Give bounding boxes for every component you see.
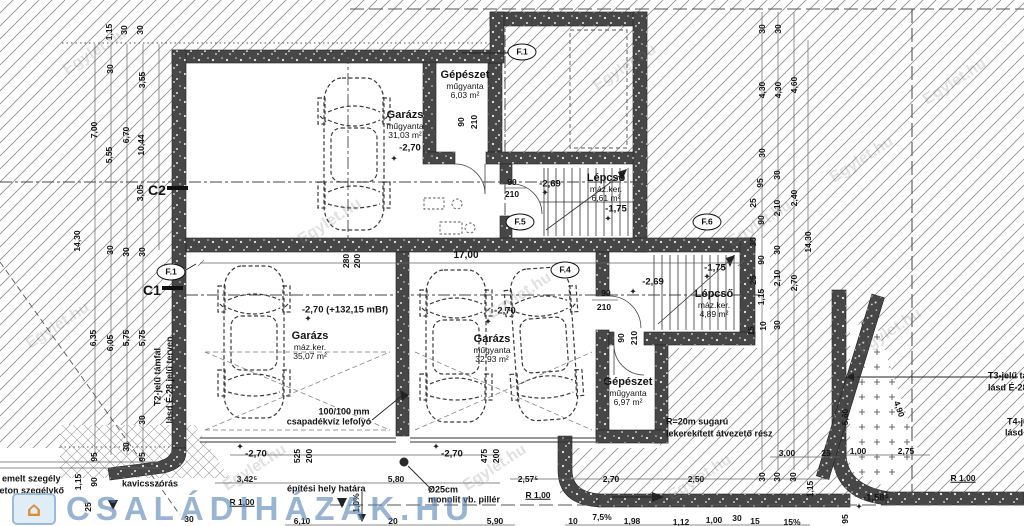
level-marker-icon: ✦ xyxy=(484,318,492,327)
level-marker-icon: ✦ xyxy=(703,273,711,282)
dimension-label: 95 xyxy=(138,452,147,461)
room-label: Garázsmáz.ker.35,07 m² xyxy=(292,331,329,362)
annotation-text: T4-jelű támfal xyxy=(1007,418,1024,427)
detail-marker: F.1 xyxy=(508,44,537,61)
dimension-label: 30 xyxy=(758,148,767,157)
level-marker-icon: ✦ xyxy=(390,155,398,164)
dimension-label: 1,00 xyxy=(706,516,723,525)
dimension-label: 3,05 xyxy=(136,185,145,202)
dimension-label: 6,70 xyxy=(122,127,131,144)
dimension-label: 90 xyxy=(617,333,626,342)
level-marker-icon: ✦ xyxy=(236,443,244,452)
dimension-label: 1,15 xyxy=(806,481,815,498)
room-label: Garázsműgyanta31,03 m² xyxy=(386,110,423,141)
site-watermark: Egylet.hu xyxy=(23,300,92,353)
level-marker-icon: ✦ xyxy=(541,189,549,198)
dimension-label: 90 xyxy=(601,289,610,298)
site-watermark: Egylet.hu xyxy=(665,452,734,505)
dimension-label: 1,12 xyxy=(673,518,690,526)
site-watermark: Egylet.hu xyxy=(725,198,794,251)
site-watermark: Egylet.hu xyxy=(485,270,554,323)
room-label: Lépcsőmáz.ker.6,61 m² xyxy=(587,173,626,204)
dimension-label: 7,00 xyxy=(90,122,99,139)
detail-marker: F.5 xyxy=(506,214,535,231)
dimension-label: 30 xyxy=(773,320,782,329)
dimension-label: 2,40 xyxy=(790,190,799,207)
room-name: Lépcső xyxy=(695,289,734,301)
dimension-label: 30 xyxy=(773,472,782,481)
dimension-label: 7,5% xyxy=(592,513,611,522)
dimension-label: 4,30 xyxy=(774,82,783,99)
dimension-label: 5,75 xyxy=(138,330,147,347)
dimension-label: 25 xyxy=(821,449,830,458)
dimension-label: 10 xyxy=(759,321,768,330)
dimension-label: 525 xyxy=(293,449,302,463)
room-area: 35,07 m² xyxy=(292,352,329,362)
dimension-label: 4,90 xyxy=(892,400,906,418)
dimension-label: 200 xyxy=(353,254,362,268)
dimension-label: 90 xyxy=(457,117,466,126)
dimension-label: 30 xyxy=(732,514,741,523)
detail-marker: F.6 xyxy=(693,214,722,231)
annotation-text: lásd É-28 xyxy=(1005,429,1024,438)
dimension-label: 90 xyxy=(90,477,99,486)
room-name: Lépcső xyxy=(587,173,626,185)
dimension-label: 15% xyxy=(783,518,800,526)
dimension-label: 30 xyxy=(122,247,131,256)
dimension-label: 210 xyxy=(470,115,479,129)
dimension-label: 5,80 xyxy=(388,475,405,484)
annotation-text: T3-jelű támfal xyxy=(988,372,1024,381)
dimension-label: 30 xyxy=(138,247,147,256)
annotation-text: emelt szegély xyxy=(2,475,61,484)
room-name: Garázs xyxy=(292,331,329,343)
dimension-label: 6,35 xyxy=(89,330,98,347)
section-marker: C2 xyxy=(148,183,166,197)
level-marker-icon: ✦ xyxy=(304,315,312,324)
dimension-label: R 1,00 xyxy=(525,491,550,500)
site-watermark: Egylet.hu xyxy=(60,26,129,79)
dimension-label: 30 xyxy=(773,170,782,179)
dimension-label: 95 xyxy=(90,452,99,461)
dimension-label: 4,30 xyxy=(758,82,767,99)
room-label: Gépészetműgyanta6,97 m² xyxy=(604,377,653,408)
annotation-text: lásd É-28 jelű terven xyxy=(166,336,175,423)
dimension-label: 90 xyxy=(507,178,516,187)
level-label: -2,69 xyxy=(642,277,664,287)
site-watermark: Egylet.hu xyxy=(920,56,989,109)
level-marker-icon: ✦ xyxy=(432,443,440,452)
room-name: Garázs xyxy=(386,110,423,122)
dimension-label: 2,57⁵ xyxy=(518,475,539,484)
dimension-label: 10,44 xyxy=(137,134,146,155)
dimension-label: 5,55 xyxy=(105,147,114,164)
dimension-label: 1,00 xyxy=(850,447,867,456)
dimension-label: 6,05 xyxy=(106,335,115,352)
site-watermark: Egylet.hu xyxy=(590,42,659,95)
annotation-text: lásd É-28 jelű terven xyxy=(988,384,1024,393)
level-label: -1,75 xyxy=(605,204,627,214)
dimension-label: 30 xyxy=(136,25,145,34)
dimension-label: 5,90 xyxy=(487,517,504,526)
room-area: 6,61 m² xyxy=(587,194,626,204)
dimension-label: 5,75 xyxy=(122,330,131,347)
annotation-text: T2-jelű támfal xyxy=(154,348,163,406)
dimension-label: 1,15 xyxy=(74,474,83,491)
dimension-label: 3,55 xyxy=(138,72,147,89)
detail-marker: F.4 xyxy=(551,262,580,279)
dimension-label: 30 xyxy=(774,24,783,33)
dimension-label: 30 xyxy=(106,245,115,254)
annotation-text: lekerekített átvezető rész xyxy=(666,430,773,439)
dimension-label: 10 xyxy=(568,517,577,526)
level-label: -2,70 (+132,15 mBf) xyxy=(302,305,388,315)
dimension-label: 4,60 xyxy=(790,77,799,94)
level-marker-icon: ✦ xyxy=(604,215,612,224)
dimension-label: 3,00 xyxy=(779,449,796,458)
site-watermark: Egylet.hu xyxy=(855,306,924,359)
room-label: Gépészetműgyanta6,03 m² xyxy=(441,70,490,101)
room-area: 4,89 m² xyxy=(695,310,734,320)
dimension-label: 15 xyxy=(747,326,756,335)
dimension-label: 210 xyxy=(597,303,611,312)
dimension-label: 200 xyxy=(305,449,314,463)
dimension-label: 1,15 xyxy=(757,289,766,306)
dimension-label: 210 xyxy=(630,331,639,345)
dimension-label: 95 xyxy=(841,514,850,523)
annotation-text: csapadékvíz lefolyó xyxy=(287,418,372,427)
dimension-label: 5,60 xyxy=(841,409,850,426)
section-marker: C1 xyxy=(143,283,161,297)
dimension-label: 30 xyxy=(122,442,131,451)
room-area: 6,03 m² xyxy=(441,91,490,101)
room-area: 6,97 m² xyxy=(604,398,653,408)
dimension-label: R 1,00 xyxy=(950,474,975,483)
dimension-label: 17,00 xyxy=(453,251,478,261)
dimension-label: 25 xyxy=(749,198,758,207)
dimension-label: 14,30 xyxy=(73,230,82,251)
room-area: 31,03 m² xyxy=(386,131,423,141)
dimension-label: 2,70 xyxy=(790,275,799,292)
brand-watermark-text: CSALÁDIHÁZAK.HU xyxy=(66,492,475,525)
dimension-label: 95 xyxy=(756,178,765,187)
floorplan-canvas: 1,153030303,557,005,556,7010,443,0514,30… xyxy=(0,0,1024,526)
room-name: Gépészet xyxy=(604,377,653,389)
room-name: Gépészet xyxy=(441,70,490,82)
dimension-label: 30 xyxy=(106,64,115,73)
dimension-label: 30 xyxy=(758,472,767,481)
dimension-label: 2,10 xyxy=(773,270,782,287)
house-icon: ⌂ xyxy=(12,493,56,525)
brand-watermark: ⌂ CSALÁDIHÁZAK.HU xyxy=(12,492,475,525)
dimension-label: 90 xyxy=(757,255,766,264)
dimension-label: 280 xyxy=(342,254,351,268)
dimension-label: 1,98 xyxy=(624,517,641,526)
plan-labels-layer: 1,153030303,557,005,556,7010,443,0514,30… xyxy=(0,0,1024,526)
level-label: -2,70 xyxy=(399,143,421,153)
level-label: -1,58⁵ xyxy=(863,493,889,503)
dimension-label: 30 xyxy=(773,245,782,254)
dimension-label: 25 xyxy=(749,275,758,284)
room-name: Garázs xyxy=(473,334,510,346)
level-marker-icon: ✦ xyxy=(855,503,863,512)
level-label: -2,70 xyxy=(441,449,463,459)
dimension-label: 30 xyxy=(138,415,147,424)
site-watermark: Egylet.hu xyxy=(295,196,364,249)
dimension-label: 2,75 xyxy=(898,447,915,456)
room-area: 32,93 m² xyxy=(473,355,510,365)
dimension-label: 210 xyxy=(505,190,519,199)
level-marker-icon: ✦ xyxy=(629,288,637,297)
site-watermark: Egylet.hu xyxy=(827,134,896,187)
room-label: Lépcsőmáz.ker.4,89 m² xyxy=(695,289,734,320)
dimension-label: 15 xyxy=(750,517,759,526)
annotation-text: R=20m sugarú xyxy=(666,418,728,427)
annotation-text: 100/100 mm xyxy=(318,408,369,417)
room-label: Garázsműgyanta32,93 m² xyxy=(473,334,510,365)
dimension-label: 2,70 xyxy=(603,475,620,484)
dimension-label: 30 xyxy=(789,472,798,481)
annotation-text: kavicsszórás xyxy=(122,480,178,489)
dimension-label: 30 xyxy=(758,24,767,33)
detail-marker: F.1 xyxy=(157,264,186,281)
dimension-label: 14,30 xyxy=(804,231,813,252)
